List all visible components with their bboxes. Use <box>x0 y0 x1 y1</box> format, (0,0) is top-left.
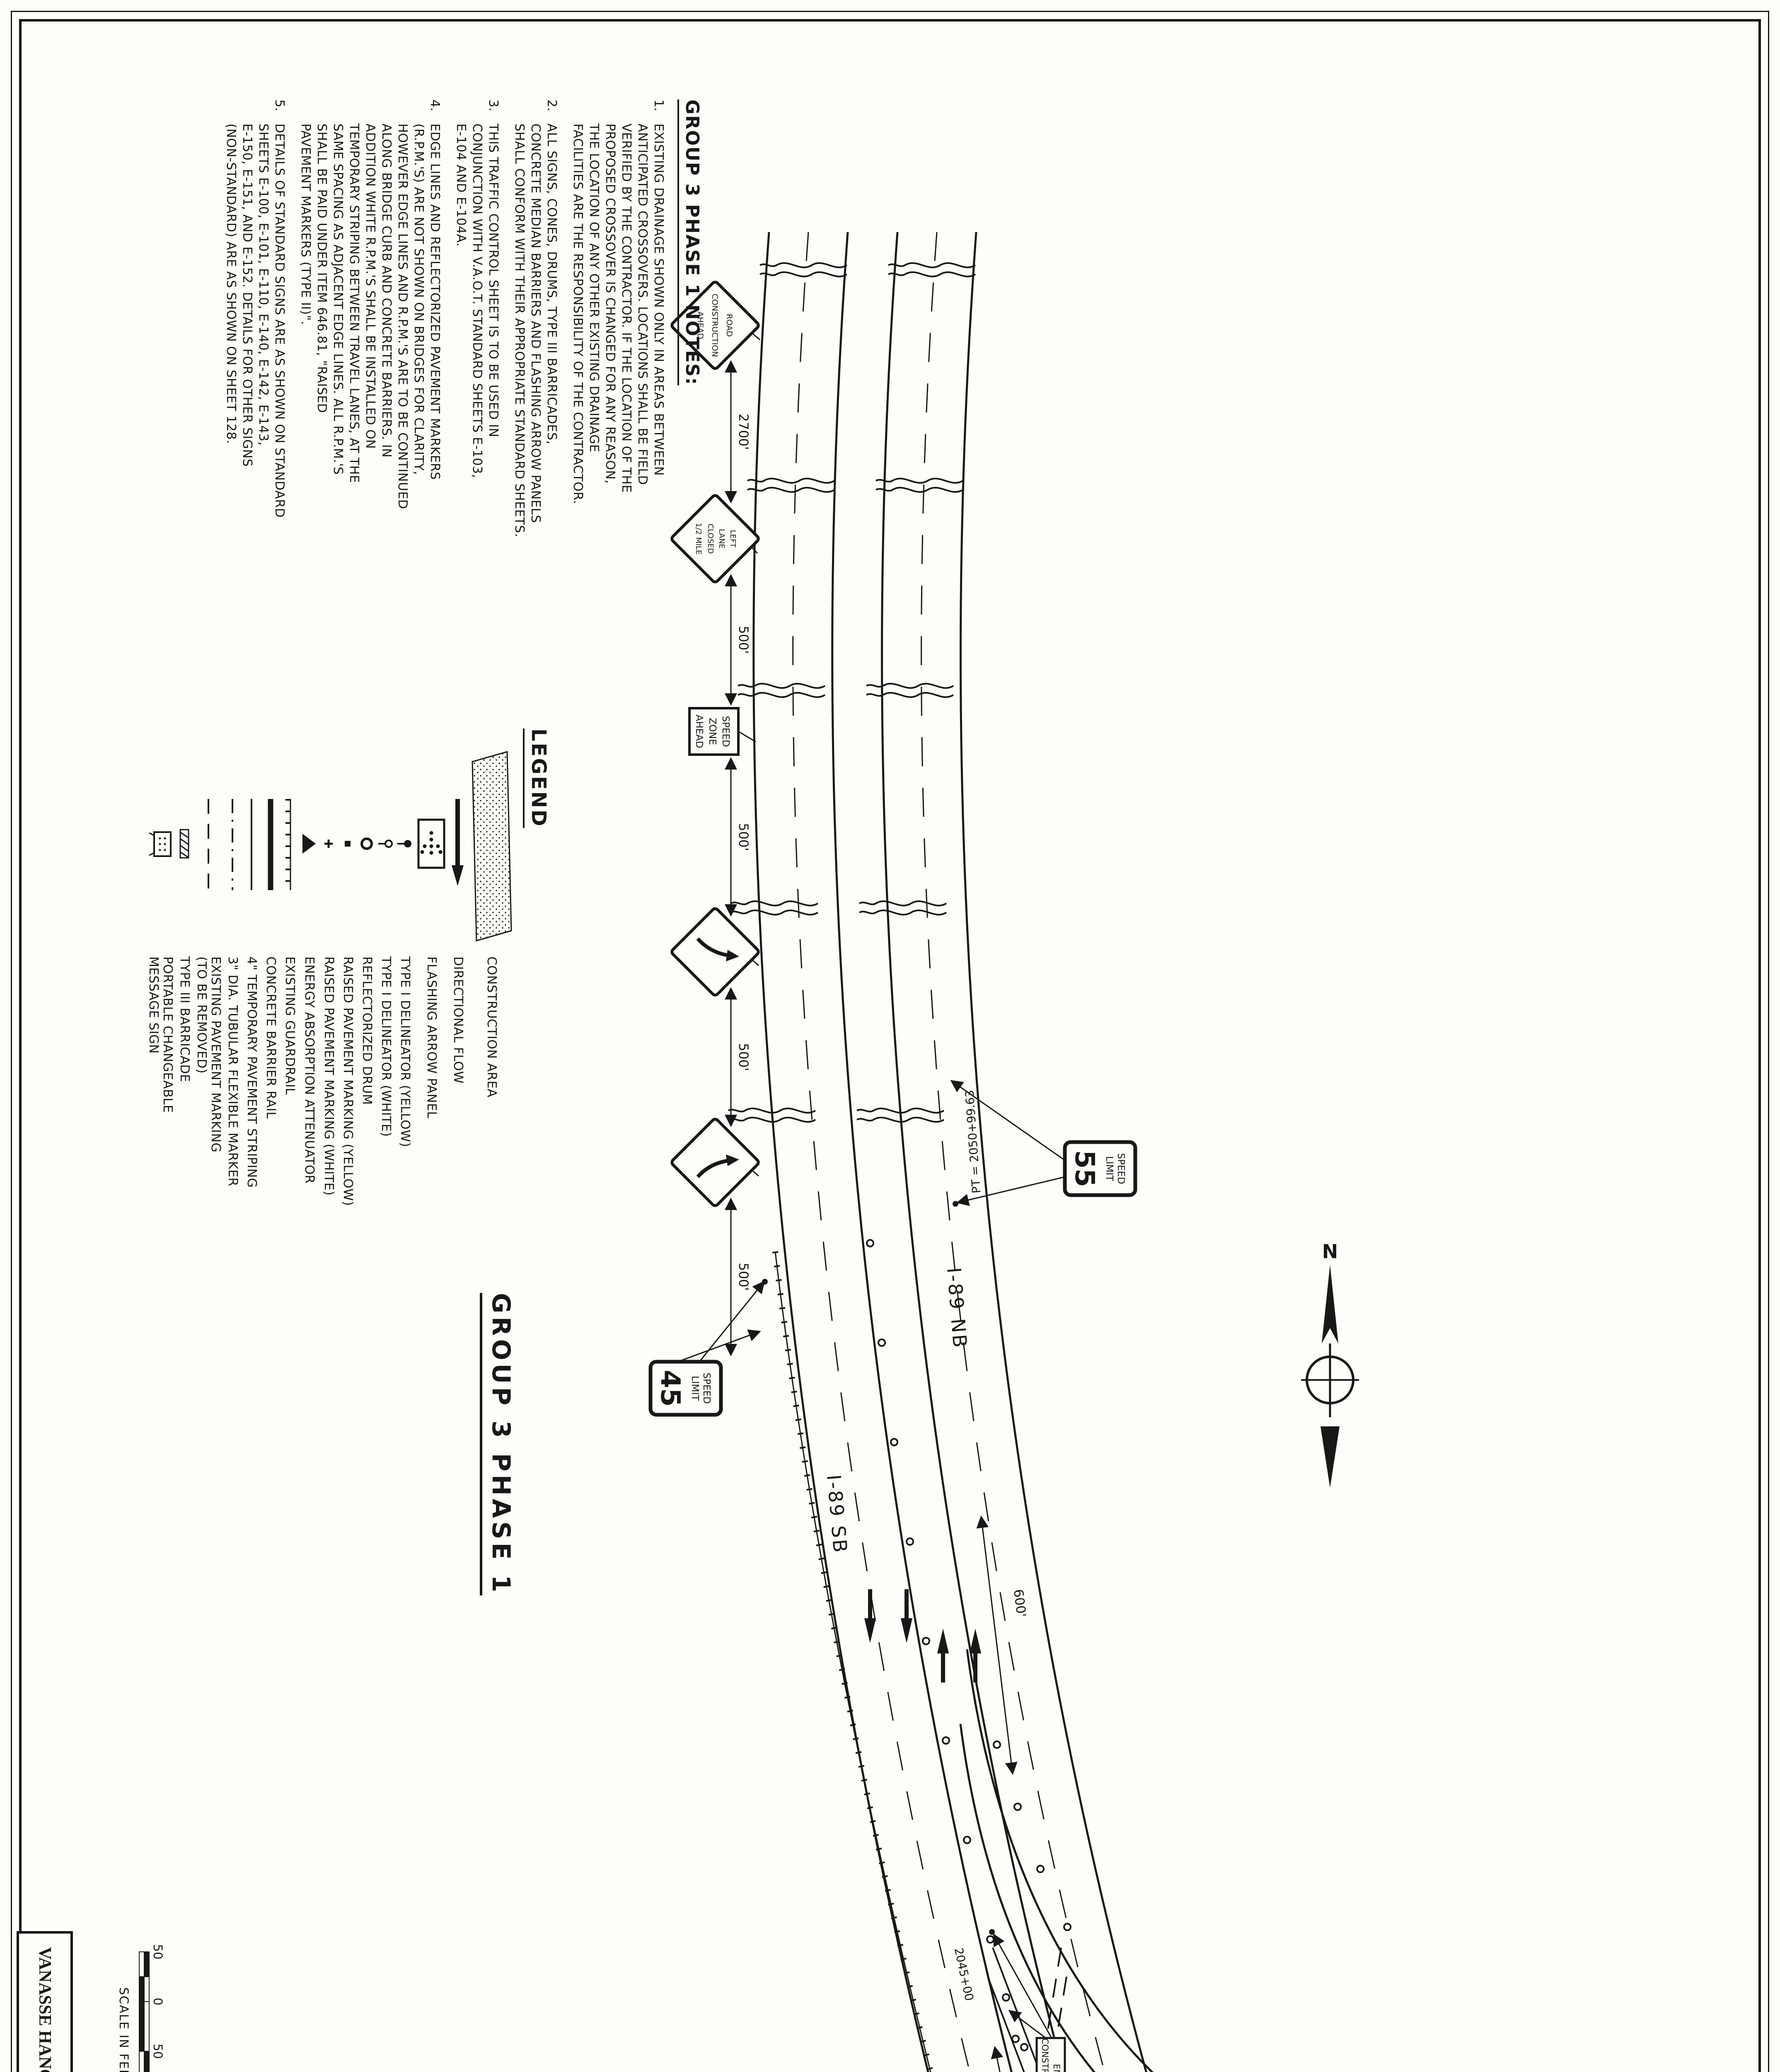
sign-lane-shift-left-symbol <box>671 1118 760 1207</box>
dim-2700: 2700' <box>736 414 751 450</box>
note-item-2: 2. ALL SIGNS, CONES, DRUMS, TYPE III BAR… <box>511 99 560 713</box>
svg-text:ZONE: ZONE <box>707 718 718 745</box>
existing-guardrail-icon <box>281 733 299 956</box>
concrete-barrier-rail-icon <box>261 733 280 956</box>
svg-text:AHEAD: AHEAD <box>694 714 704 748</box>
svg-text:CLOSED: CLOSED <box>706 524 715 554</box>
note-text: EDGE LINES AND REFLECTORIZED PAVEMENT MA… <box>297 123 443 509</box>
legend-item: TYPE III BARRICADE <box>175 733 194 1280</box>
notes-block: GROUP 3 PHASE 1 NOTES: 1. EXISTING DRAIN… <box>213 99 703 713</box>
svg-text:LIMIT: LIMIT <box>1104 1156 1115 1181</box>
dim-500-c: 500' <box>736 1043 751 1071</box>
scale-bar-graphic <box>137 1939 151 2072</box>
north-arrow: N <box>1287 1239 1378 1521</box>
svg-text:600': 600' <box>1011 1588 1029 1618</box>
station-pt: PT = 2050+99.63 <box>963 1089 983 1194</box>
svg-text:CONSTRUCTION: CONSTRUCTION <box>710 294 719 357</box>
svg-text:CONSTRUCTION: CONSTRUCTION <box>1040 2038 1050 2072</box>
tubular-flexible-marker-icon <box>223 733 242 956</box>
notes-title: GROUP 3 PHASE 1 NOTES: <box>677 99 703 385</box>
legend-item: 3" DIA. TUBULAR FLEXIBLE MARKER <box>223 733 242 1280</box>
svg-text:LIMIT: LIMIT <box>689 1376 700 1401</box>
sign-lane-shift-right-symbol <box>671 908 760 997</box>
sign-speed-limit-45: SPEED LIMIT 45 <box>651 1279 768 1415</box>
sign-end-construction: END CONSTRUCTION <box>989 1929 1065 2072</box>
nb-ramp <box>960 1649 1548 2072</box>
legend-item: TYPE I DELINEATOR (WHITE) <box>376 733 395 1280</box>
note-number: 3. <box>453 99 501 123</box>
legend-item: CONCRETE BARRIER RAIL <box>261 733 280 1280</box>
note-item-4: 4. EDGE LINES AND REFLECTORIZED PAVEMENT… <box>297 99 443 713</box>
svg-text:END: END <box>1052 2064 1062 2072</box>
raised-pavement-marking-white-icon <box>319 733 338 956</box>
svg-text:ROAD: ROAD <box>725 314 734 336</box>
legend-item: EXISTING GUARDRAIL <box>280 733 299 1280</box>
legend-item: REFLECTORIZED DRUM <box>357 733 376 1280</box>
type-iii-barricade-icon <box>175 733 193 956</box>
portable-changeable-message-sign-icon <box>148 733 173 956</box>
svg-text:55: 55 <box>1069 1150 1100 1187</box>
temporary-pavement-striping-icon <box>242 733 261 956</box>
note-text: DETAILS OF STANDARD SIGNS ARE AS SHOWN O… <box>223 123 288 518</box>
landscape-sheet: ROAD CONSTRUCTION AHEAD LEFT LANE CLOSED… <box>0 0 1780 2072</box>
plan-phase-title: GROUP 3 PHASE 1 <box>480 1293 515 1595</box>
type-i-delineator-yellow-icon <box>396 733 414 956</box>
legend-item: EXISTING PAVEMENT MARKING (TO BE REMOVED… <box>194 733 223 1280</box>
type-i-delineator-white-icon <box>377 733 395 956</box>
label-i89-nb: I-89 NB <box>943 1267 971 1350</box>
note-item-1: 1. EXISTING DRAINAGE SHOWN ONLY IN AREAS… <box>570 99 667 713</box>
svg-text:45: 45 <box>655 1370 685 1406</box>
dim-500-d: 500' <box>736 1263 751 1291</box>
svg-text:SPEED: SPEED <box>701 1372 712 1404</box>
note-item-5: 5. DETAILS OF STANDARD SIGNS ARE AS SHOW… <box>223 99 288 713</box>
scale-label: 50 <box>151 2044 165 2059</box>
reflectorized-drum-icon <box>358 733 376 956</box>
legend-item: CONSTRUCTION AREA <box>467 733 515 1280</box>
legend-block: LEGEND CONSTRUCTION AREA DIRECTIONAL FLO… <box>146 733 550 1280</box>
scale-label: 50 <box>151 1944 165 1960</box>
sheet-page: ROAD CONSTRUCTION AHEAD LEFT LANE CLOSED… <box>0 0 1780 2072</box>
ramp-dimension: 600' <box>981 1517 1029 1774</box>
energy-absorption-attenuator-icon <box>299 733 319 956</box>
legend-title: LEGEND <box>523 729 550 828</box>
dim-500-b: 500' <box>736 823 751 851</box>
legend-item: ENERGY ABSORPTION ATTENUATOR <box>299 733 319 1280</box>
station-2045: 2045+00 <box>952 1946 976 2002</box>
note-number: 2. <box>511 99 560 123</box>
flashing-arrow-panel-icon <box>415 733 447 956</box>
existing-pavement-marking-icon <box>199 733 218 956</box>
scale-bar-labels: 50 0 50 100 <box>151 1939 165 2072</box>
bridge-break-marks <box>728 263 975 1122</box>
legend-item: RAISED PAVEMENT MARKING (YELLOW) <box>338 733 357 1280</box>
scale-label: 0 <box>151 1998 165 2005</box>
scale-caption: SCALE IN FEET <box>117 1939 131 2072</box>
legend-item: FLASHING ARROW PANEL <box>414 733 448 1280</box>
firm-name-box: VANASSE HANGEN BRUSTLIN, INC. <box>17 1931 73 2072</box>
legend-item: TYPE I DELINEATOR (YELLOW) <box>395 733 414 1280</box>
svg-text:LEFT: LEFT <box>728 530 737 548</box>
label-i89-sb: I-89 SB <box>822 1474 852 1555</box>
note-text: ALL SIGNS, CONES, DRUMS, TYPE III BARRIC… <box>511 123 560 537</box>
raised-pavement-marking-yellow-icon <box>339 733 357 956</box>
note-number: 4. <box>297 99 443 123</box>
note-text: EXISTING DRAINAGE SHOWN ONLY IN AREAS BE… <box>570 123 667 504</box>
directional-flow-icon <box>449 733 467 956</box>
note-text: THIS TRAFFIC CONTROL SHEET IS TO BE USED… <box>453 123 501 478</box>
construction-area-icon <box>469 733 514 956</box>
svg-text:SPEED: SPEED <box>1115 1153 1126 1184</box>
svg-text:SPEED: SPEED <box>720 716 731 747</box>
scale-bar: 50 0 50 100 SCALE IN FEET <box>117 1939 165 2072</box>
note-number: 1. <box>570 99 667 123</box>
note-number: 5. <box>223 99 288 123</box>
legend-item: 4" TEMPORARY PAVEMENT STRIPING <box>242 733 261 1280</box>
legend-item: PORTABLE CHANGEABLE MESSAGE SIGN <box>146 733 175 1280</box>
svg-text:LANE: LANE <box>717 529 726 549</box>
legend-item: DIRECTIONAL FLOW <box>448 733 467 1280</box>
note-item-3: 3. THIS TRAFFIC CONTROL SHEET IS TO BE U… <box>453 99 501 713</box>
sign-speed-zone-ahead: SPEED ZONE AHEAD <box>689 708 756 755</box>
svg-text:N: N <box>1322 1240 1338 1263</box>
legend-item: RAISED PAVEMENT MARKING (WHITE) <box>319 733 338 1280</box>
dim-500-a: 500' <box>736 626 751 654</box>
